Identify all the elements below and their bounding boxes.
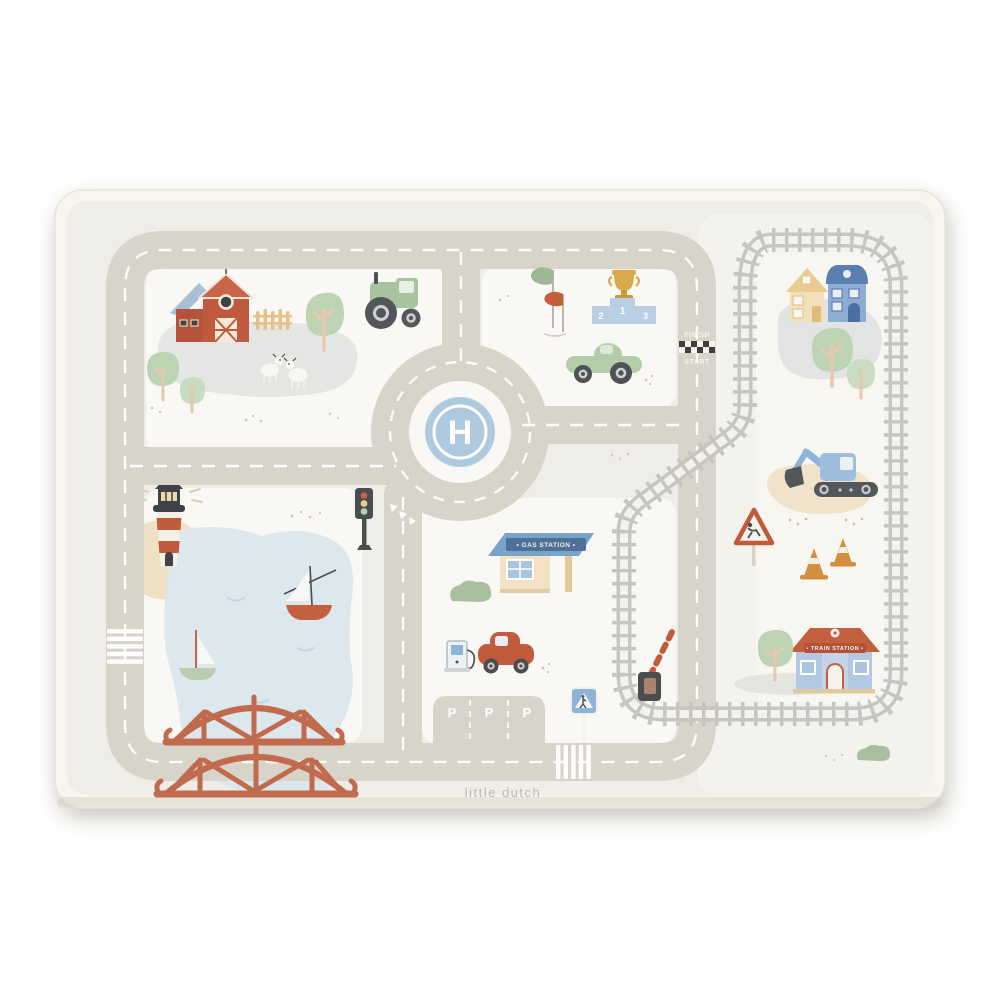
traffic-light-yellow — [361, 500, 368, 507]
lighthouse-door — [165, 552, 173, 566]
parking-letter: P — [485, 705, 494, 720]
train-station: • TRAIN STATION • — [790, 628, 880, 694]
play-mat-photo: P P P FINISH START H — [0, 0, 1000, 1000]
helipad: H — [425, 397, 495, 467]
train-station-sign: • TRAIN STATION • — [806, 646, 863, 652]
play-mat: P P P FINISH START H — [55, 190, 945, 808]
brand-wordmark: little dutch — [465, 785, 542, 800]
podium-first: 1 — [620, 306, 626, 317]
product-photo: P P P FINISH START H — [0, 0, 1000, 1000]
traffic-light-red — [361, 492, 368, 499]
start-label: START — [684, 359, 710, 366]
fence — [253, 309, 292, 330]
gas-station-sign: • GAS STATION • — [516, 542, 575, 549]
parking-letter: P — [523, 705, 532, 720]
traffic-light-green — [361, 508, 368, 515]
parking-letter: P — [448, 705, 457, 720]
podium-third: 3 — [643, 311, 648, 321]
barn-round-window — [220, 296, 233, 309]
podium-second: 2 — [598, 311, 603, 321]
station-door — [827, 664, 843, 690]
helipad-letter: H — [448, 414, 473, 452]
finish-line: FINISH START — [679, 332, 715, 366]
checkered-band — [679, 341, 715, 353]
finish-label: FINISH — [684, 332, 710, 339]
parking-lot: P P P — [433, 696, 545, 760]
blue-house — [826, 265, 868, 322]
